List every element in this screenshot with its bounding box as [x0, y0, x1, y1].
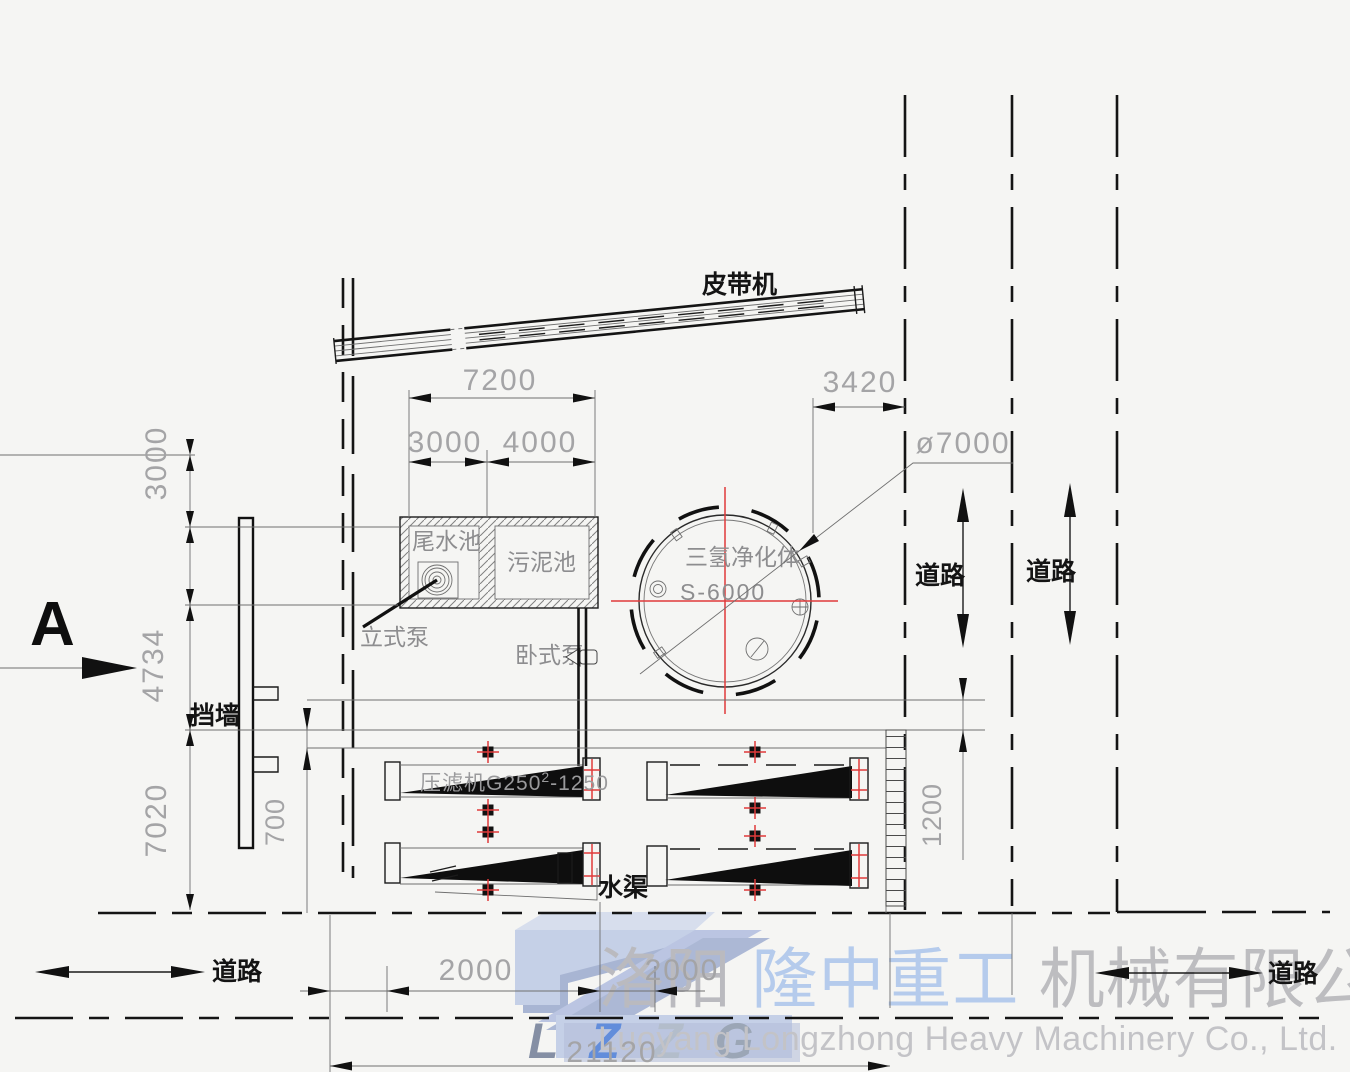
drawing-canvas: L Z Z G 洛阳 隆中重工 机械有限公司 Luoyang Longzhong…: [0, 0, 1350, 1072]
dim-wall-offset: 700: [260, 798, 290, 846]
dim-tank-diameter: ø7000: [915, 427, 1010, 460]
vertical-pump-label: 立式泵: [360, 624, 429, 650]
belt-conveyor: 皮带机: [334, 271, 865, 365]
purifier-name-label: 三氢净化体: [685, 544, 800, 570]
dim-bottom-total: 21120: [566, 1036, 657, 1069]
dim-left-bottom: 7020: [140, 783, 173, 858]
filter-press-top-right: [647, 758, 868, 800]
pump-pipe: [579, 608, 587, 766]
dim-left-mid: 4734: [137, 628, 170, 703]
sludge-pool-label: 污泥池: [507, 549, 576, 575]
road-arrow-right-1: 道路: [915, 488, 969, 648]
road-label: 道路: [1268, 959, 1319, 988]
section-marker: A: [0, 590, 137, 679]
cad-site-plan: L Z Z G 洛阳 隆中重工 机械有限公司 Luoyang Longzhong…: [0, 0, 1350, 1072]
pools: 尾水池 污泥池 立式泵 卧式泵: [360, 517, 598, 766]
road-arrow-right-2: 道路: [1026, 483, 1077, 645]
retaining-wall-label: 挡墙: [190, 702, 240, 730]
purifier-tank: 三氢净化体 S-6000: [611, 487, 838, 714]
company-name-en: Luoyang Longzhong Heavy Machinery Co., L…: [598, 1020, 1338, 1058]
road-label: 道路: [1026, 557, 1077, 586]
filter-press-bottom-right: [647, 843, 868, 888]
road-label: 道路: [915, 561, 966, 590]
road-arrow-bottom-left: 道路: [35, 957, 263, 986]
dim-bottom-gap-2: 2000: [645, 954, 720, 987]
dim-tank-road: 3420: [823, 366, 898, 399]
dim-pool-total: 7200: [463, 364, 538, 397]
tailwater-pool-label: 尾水池: [412, 528, 481, 554]
dim-right-gap: 1200: [917, 783, 947, 847]
road-label: 道路: [212, 957, 263, 986]
water-channel-label: 水渠: [598, 873, 648, 902]
dim-pool-left: 3000: [408, 426, 483, 459]
filter-press-top-left: 压滤机G2502-1250: [385, 758, 609, 800]
section-marker-label: A: [30, 590, 75, 659]
dim-left-top: 3000: [140, 426, 173, 501]
dim-pool-right: 4000: [503, 426, 578, 459]
purifier-model-label: S-6000: [680, 579, 766, 605]
dim-bottom-gap-1: 2000: [439, 954, 514, 987]
filter-press-label: 压滤机G2502-1250: [420, 769, 609, 795]
belt-conveyor-label: 皮带机: [702, 271, 777, 299]
